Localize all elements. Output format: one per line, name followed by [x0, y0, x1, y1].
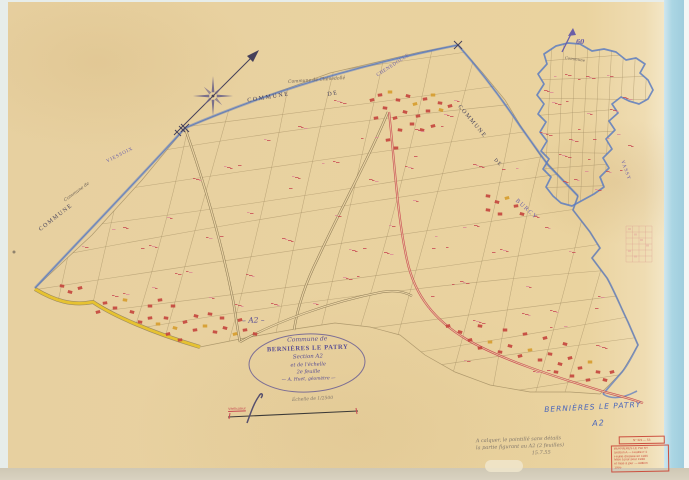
parcel-number-marks [82, 74, 634, 373]
title-cartouche: Commune de BERNIÈRES LE PATRY Section A2… [249, 334, 367, 384]
faint-grid-stamp [626, 226, 652, 262]
sheet-section-handwritten: A2 [592, 418, 605, 428]
scanned-cadastral-sheet: COMMUNE DE CHENEDOLLE Commune de Chênedo… [0, 0, 689, 480]
yellow-boundary-road [35, 289, 200, 347]
stamp-header: N° 321 — 53 [619, 436, 665, 445]
parcel-mesh-inset [530, 40, 660, 210]
verifier-annotation: Vérificateur [228, 406, 246, 411]
stamp-body: BERNIÈRES LE PATRY Section A — Feuille n… [611, 444, 669, 472]
inset-north-arrow-icon [562, 28, 576, 52]
internal-roads [185, 112, 412, 342]
section-mark: – A2 – [242, 316, 265, 324]
punch-hole [13, 251, 16, 254]
certification-stamp: N° 321 — 53 BERNIÈRES LE PATRY Section A… [611, 435, 670, 472]
inset-map [537, 28, 653, 206]
inset-sheet-number: 60 [576, 39, 584, 46]
